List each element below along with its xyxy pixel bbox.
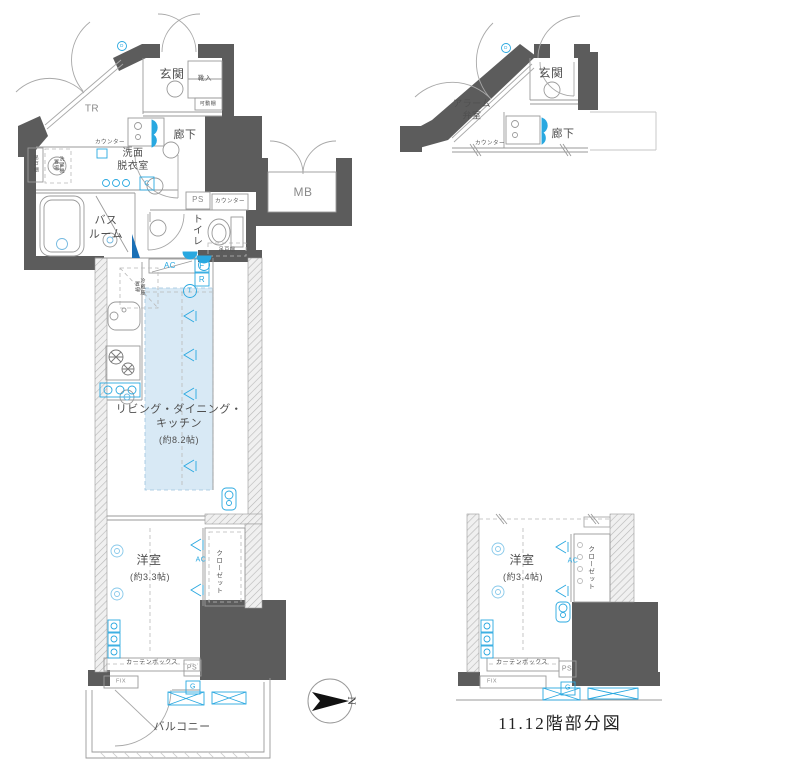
ldk-floor-highlight xyxy=(145,288,213,490)
floorplan-canvas: TR 玄関 靴入 可動棚 廊下 カウンター 洗面 脱衣室 吊戸棚 洗濯機 置場 … xyxy=(0,0,800,768)
label-ps-upper: PS xyxy=(192,195,204,205)
label-sym-f: F xyxy=(199,261,204,271)
label-sym-c: C xyxy=(144,179,150,188)
label-ac-partial-bedroom: AC xyxy=(568,556,579,565)
label-sym-r: R xyxy=(199,275,205,285)
label-hanging-cupboard-toilet: 吊戸棚 xyxy=(219,247,236,254)
label-ps-lower-main: PS xyxy=(187,663,197,672)
label-fridge-place: 冷蔵庫 置場 xyxy=(134,278,145,296)
label-ac-main-bedroom: AC xyxy=(196,555,207,564)
label-fix-window-main: FIX xyxy=(116,678,126,685)
label-curtain-box-main: カーテンボックス xyxy=(126,660,178,668)
label-washer-place: 洗濯機 置場 xyxy=(53,156,64,174)
label-bathroom: バス ルーム xyxy=(89,214,123,243)
label-ldk-size: (約8.2帖) xyxy=(159,435,199,447)
label-main-corridor: 廊下 xyxy=(174,128,197,142)
label-partial-entrance: 玄関 xyxy=(538,66,563,82)
label-main-closet: クローゼット xyxy=(214,550,221,595)
label-partial-bedroom: 洋室 xyxy=(509,553,534,569)
label-partial-closet: クローゼット xyxy=(586,546,593,591)
label-partial-counter: カウンター xyxy=(475,140,505,147)
label-movable-shelf: 可動棚 xyxy=(200,101,217,108)
label-ps-partial: PS xyxy=(562,664,572,673)
partial-plan-caption: 11.12階部分図 xyxy=(498,713,622,735)
label-alarm-valve-room: アラーム 弁室 xyxy=(453,98,491,121)
label-sym-g-main: G xyxy=(190,682,196,691)
balcony-railing-ticks xyxy=(100,752,250,758)
label-sym-t: T xyxy=(188,286,193,295)
label-sym-g-partial: G xyxy=(565,683,571,692)
label-main-bedroom: 洋室 xyxy=(136,553,161,569)
label-fix-window-partial: FIX xyxy=(487,678,497,685)
label-balcony: バルコニー xyxy=(153,720,210,734)
label-main-bedroom-size: (約3.3帖) xyxy=(130,572,170,584)
label-ac-kitchen: AC xyxy=(164,261,176,271)
label-main-entrance: 玄関 xyxy=(159,67,184,83)
label-sym-d-main: D xyxy=(120,43,124,49)
label-counter-toilet: カウンター xyxy=(215,198,245,205)
label-toilet: トイレ xyxy=(191,214,202,247)
label-meter-box: MB xyxy=(294,185,313,201)
label-ldk: リビング・ダイニング・ キッチン xyxy=(116,403,243,432)
north-letter: N xyxy=(343,696,359,705)
label-partial-corridor: 廊下 xyxy=(552,127,575,141)
label-hanging-cupboard-left: 吊戸棚 xyxy=(32,155,38,173)
label-sym-d-partial: D xyxy=(504,45,508,51)
label-curtain-box-partial: カーテンボックス xyxy=(496,660,548,668)
label-counter-washroom: カウンター xyxy=(95,139,125,146)
label-washroom: 洗面 脱衣室 xyxy=(117,147,149,173)
label-partial-bedroom-size: (約3.4帖) xyxy=(503,572,543,584)
label-shoe-cabinet: 靴入 xyxy=(198,75,212,83)
floorplan-linework xyxy=(0,0,800,768)
label-trunk-room: TR xyxy=(85,103,99,116)
partial-break-marks xyxy=(470,144,599,524)
